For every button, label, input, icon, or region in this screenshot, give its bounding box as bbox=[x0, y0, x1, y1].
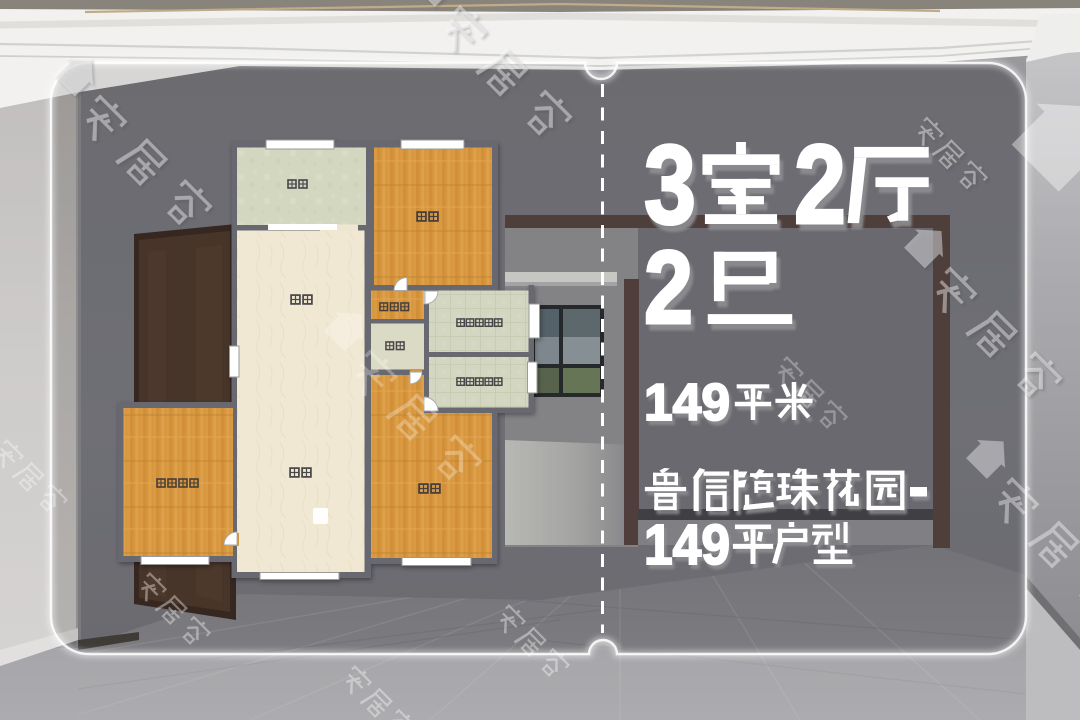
svg-text:149: 149 bbox=[644, 374, 730, 432]
svg-text:149: 149 bbox=[644, 513, 730, 577]
svg-text:2: 2 bbox=[644, 230, 693, 346]
svg-text:3: 3 bbox=[644, 122, 696, 247]
svg-text:2: 2 bbox=[794, 122, 846, 247]
